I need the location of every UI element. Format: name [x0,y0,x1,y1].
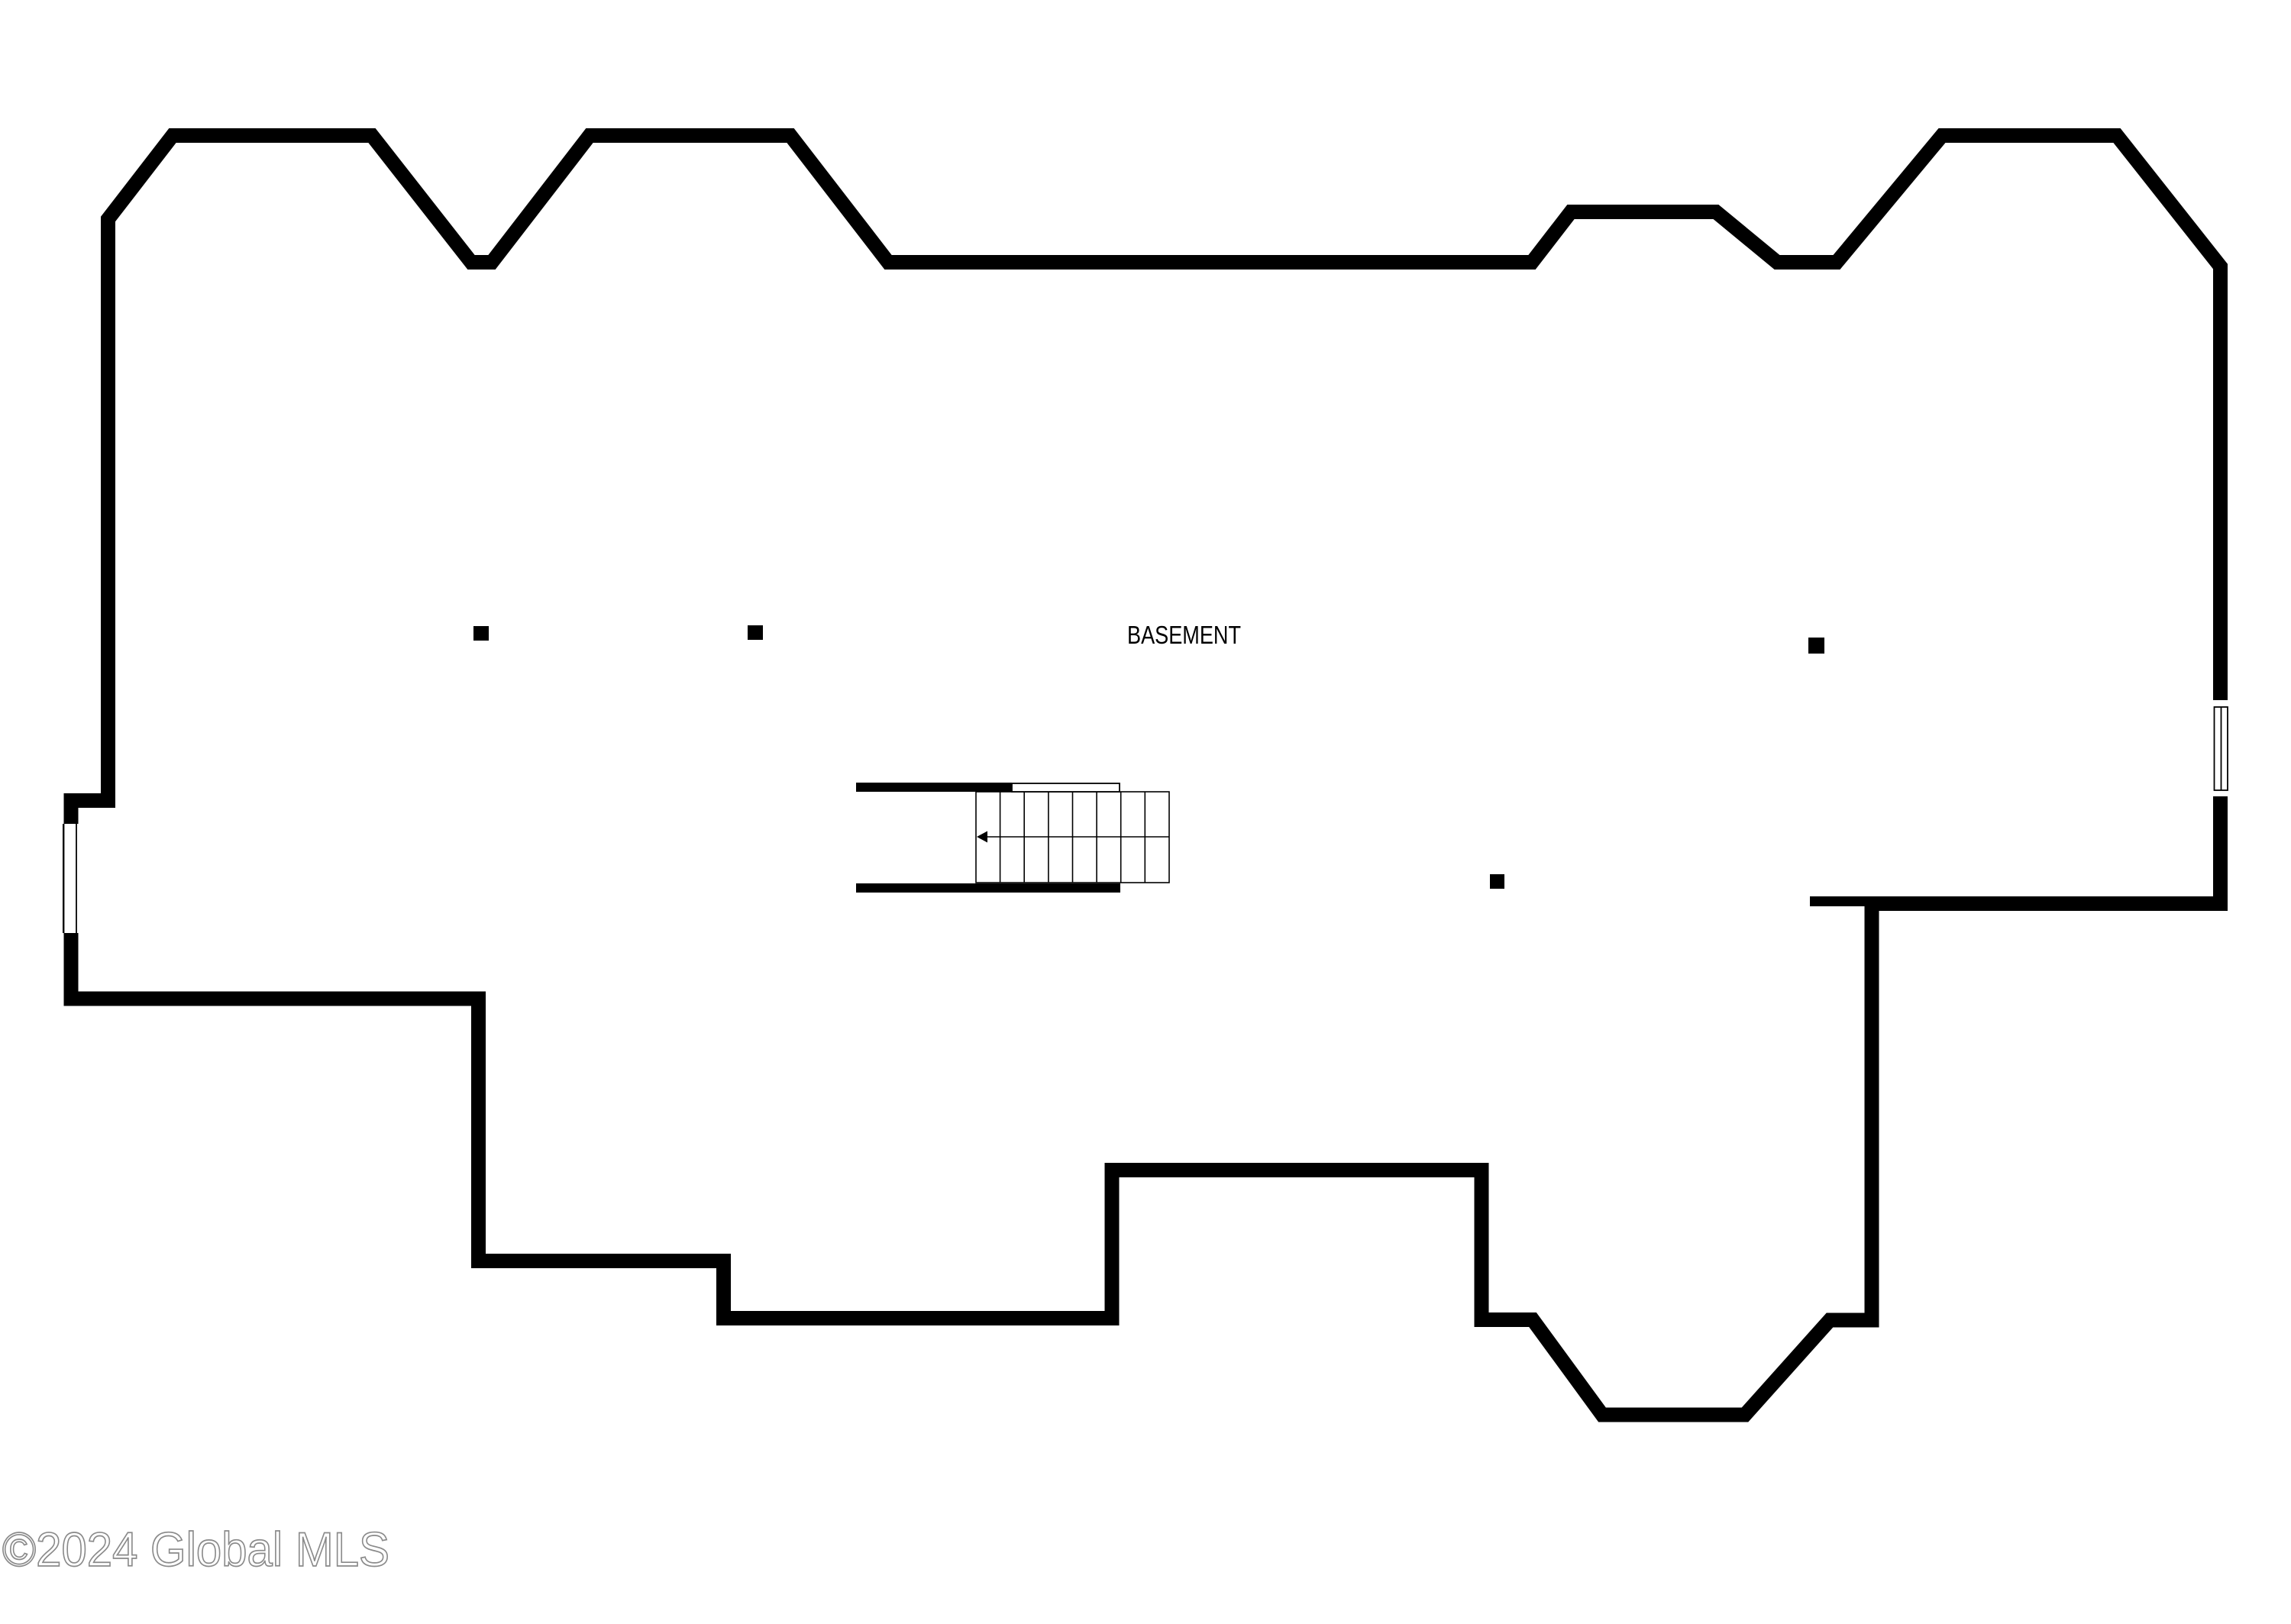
svg-text:©2024 Global MLS: ©2024 Global MLS [2,1523,389,1577]
svg-text:BASEMENT: BASEMENT [1127,622,1241,650]
